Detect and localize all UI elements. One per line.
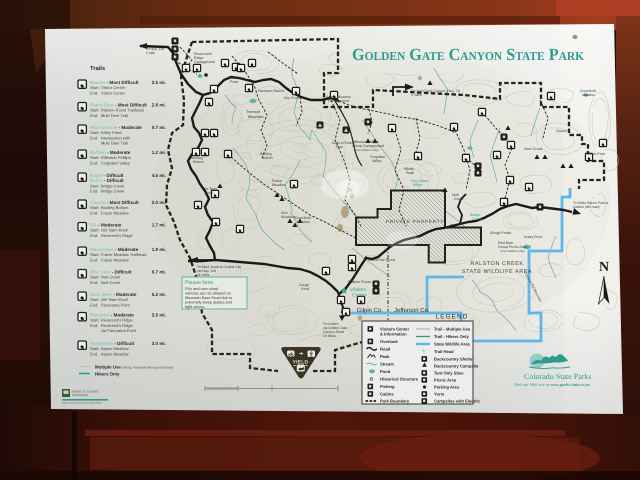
svg-text:Meadow: Meadow xyxy=(582,93,595,97)
svg-text:Ralston Point: Ralston Point xyxy=(585,152,605,156)
svg-text:Historical Structure: Historical Structure xyxy=(380,377,419,382)
svg-text:1.7 mi.: 1.7 mi. xyxy=(152,223,166,228)
svg-text:Gilpin Co.: Gilpin Co. xyxy=(357,307,384,314)
svg-text:0.7 mi.: 0.7 mi. xyxy=(152,125,166,130)
svg-text:6.7 mi.: 6.7 mi. xyxy=(152,270,166,275)
svg-text:3.0 mi.: 3.0 mi. xyxy=(152,341,166,346)
svg-text:via Panorama Point: via Panorama Point xyxy=(101,328,137,333)
svg-text:Yurts: Yurts xyxy=(434,392,445,397)
svg-text:Bridge Creek: Bridge Creek xyxy=(101,189,124,194)
svg-text:Trail - Multiple Use: Trail - Multiple Use xyxy=(434,327,471,332)
svg-text:Nott Creek: Nott Creek xyxy=(101,280,120,285)
svg-text:N: N xyxy=(599,260,609,275)
svg-text:Hole: Hole xyxy=(336,145,343,149)
svg-text:Slough Ponds: Slough Ponds xyxy=(490,231,511,235)
svg-text:Campground: Campground xyxy=(194,60,215,64)
svg-text:Hikers Only: Hikers Only xyxy=(95,372,120,377)
svg-text:Parking Area: Parking Area xyxy=(434,385,460,390)
svg-text:Golden (dirt road): Golden (dirt road) xyxy=(573,205,600,209)
svg-text:Forgotten Valley: Forgotten Valley xyxy=(101,160,130,165)
svg-text:Multiple Use: Multiple Use xyxy=(95,365,121,370)
svg-text:Mountain Base Road due to: Mountain Base Road due to xyxy=(185,296,232,300)
svg-text:End:: End: xyxy=(90,113,98,118)
svg-text:Tremont: Tremont xyxy=(246,110,261,114)
svg-text:Meadows: Meadows xyxy=(281,215,296,219)
svg-text:Reverend's Ridge: Reverend's Ridge xyxy=(101,233,133,238)
svg-text:Backcountry Campsite: Backcountry Campsite xyxy=(434,364,479,369)
svg-text:Tent Only Sites: Tent Only Sites xyxy=(434,371,464,376)
svg-text:End:: End: xyxy=(90,90,98,95)
svg-text:End:: End: xyxy=(90,257,98,262)
svg-text:Aspen Meadow: Aspen Meadow xyxy=(101,351,129,356)
svg-text:STATE WILDLIFE AREA: STATE WILDLIFE AREA xyxy=(462,269,532,275)
svg-text:Creek: Creek xyxy=(454,197,464,201)
svg-text:RALSTON CREEK: RALSTON CREEK xyxy=(470,261,523,267)
svg-text:Pond: Pond xyxy=(380,369,391,374)
svg-text:Jefferson Co.: Jefferson Co. xyxy=(394,307,430,314)
svg-text:1.2 mi.: 1.2 mi. xyxy=(152,150,166,155)
svg-text:Bottom: Bottom xyxy=(193,160,204,164)
svg-text:Pond: Pond xyxy=(301,287,309,291)
svg-text:Colorado State Parks: Colorado State Parks xyxy=(524,372,592,381)
svg-text:(reservations only): (reservations only) xyxy=(354,148,379,152)
svg-text:2.5 mi.: 2.5 mi. xyxy=(152,313,166,318)
svg-text:Center: Center xyxy=(352,293,367,299)
svg-text:Visit our Web site at www.park: Visit our Web site at www.parks.state.co… xyxy=(514,382,590,387)
svg-text:Mule Deer Trail: Mule Deer Trail xyxy=(101,141,128,146)
svg-text:End:: End: xyxy=(90,302,98,307)
svg-text:Bottom: Bottom xyxy=(262,156,273,160)
svg-text:extremely steep grades and: extremely steep grades and xyxy=(185,301,232,305)
svg-text:(hiking, mountain biking and h: (hiking, mountain biking and horses) xyxy=(122,366,173,370)
svg-text:tight curves.: tight curves. xyxy=(185,305,205,309)
svg-text:End:: End: xyxy=(90,135,98,140)
svg-text:Meadow: Meadow xyxy=(297,220,310,224)
svg-text:(reservations only): (reservations only) xyxy=(500,249,525,253)
svg-text:Point: Point xyxy=(230,80,238,84)
svg-text:1 mile: 1 mile xyxy=(146,51,155,55)
svg-text:Knoll: Knoll xyxy=(205,191,213,195)
svg-text:Road: Road xyxy=(380,347,391,352)
svg-text:RVs and over-sized: RVs and over-sized xyxy=(185,287,218,291)
svg-text:Mountain: Mountain xyxy=(248,115,264,119)
svg-text:Visitor Center: Visitor Center xyxy=(101,90,126,95)
svg-text:Stream: Stream xyxy=(380,362,394,367)
svg-text:Picnic Area: Picnic Area xyxy=(434,378,457,383)
svg-text:Harmsen Ranch: Harmsen Ranch xyxy=(258,89,284,93)
svg-text:Deer Creek: Deer Creek xyxy=(524,147,543,151)
svg-text:Park Boundary: Park Boundary xyxy=(380,399,410,404)
svg-text:11 miles: 11 miles xyxy=(197,273,210,277)
svg-text:LEGEND: LEGEND xyxy=(436,314,469,321)
svg-text:Please Note: Please Note xyxy=(185,280,213,286)
svg-text:1.8 mi.: 1.8 mi. xyxy=(152,247,166,252)
svg-text:Meadow: Meadow xyxy=(272,183,286,187)
svg-text:End:: End: xyxy=(90,160,98,165)
svg-text:5 miles: 5 miles xyxy=(411,93,422,97)
svg-text:COLORADO: COLORADO xyxy=(72,393,89,397)
svg-text:End:: End: xyxy=(90,233,98,238)
svg-text:Campsites with Electric: Campsites with Electric xyxy=(434,399,481,404)
svg-text:5.2 mi.: 5.2 mi. xyxy=(152,292,166,297)
svg-text:13 miles: 13 miles xyxy=(323,334,336,338)
svg-text:2.8 mi.: 2.8 mi. xyxy=(152,103,166,108)
svg-text:4.5 mi.: 4.5 mi. xyxy=(152,173,166,178)
svg-text:Creek: Creek xyxy=(472,217,482,221)
svg-text:Golden Gate Canyon State Park: Golden Gate Canyon State Park xyxy=(352,45,585,64)
svg-text:Trail - Hikers Only: Trail - Hikers Only xyxy=(434,334,470,339)
svg-text:Quarry: Quarry xyxy=(556,129,567,133)
svg-text:Campground: Campground xyxy=(328,99,349,103)
svg-text:End:: End: xyxy=(90,280,98,285)
svg-text:Ridge: Ridge xyxy=(413,183,422,187)
svg-text:PRIVATE PROPERTY: PRIVATE PROPERTY xyxy=(386,219,444,224)
svg-text:Peak: Peak xyxy=(380,354,390,359)
svg-text:Peak: Peak xyxy=(406,171,414,175)
svg-text:Panorama Point: Panorama Point xyxy=(101,302,131,307)
svg-text:End:: End: xyxy=(90,323,98,328)
svg-text:Overlook: Overlook xyxy=(380,339,398,344)
svg-text:Trails: Trails xyxy=(90,65,105,72)
svg-text:Fishing: Fishing xyxy=(380,384,395,389)
svg-text:lottery proceeds help fund thi: lottery proceeds help fund this project xyxy=(62,401,102,404)
svg-text:Round the Roost: Round the Roost xyxy=(368,258,395,262)
svg-text:Aviary Pond: Aviary Pond xyxy=(524,235,542,239)
svg-text:End:: End: xyxy=(90,189,98,194)
svg-text:Valley: Valley xyxy=(372,159,382,163)
svg-text:End:: End: xyxy=(90,210,98,215)
svg-text:End:: End: xyxy=(90,351,98,356)
svg-text:State Wildlife Area: State Wildlife Area xyxy=(434,342,470,347)
svg-text:Frazer Meadow: Frazer Meadow xyxy=(101,210,129,215)
svg-text:Ralston Roost: Ralston Roost xyxy=(348,280,371,284)
svg-text:Backcountry Shelter: Backcountry Shelter xyxy=(434,357,474,362)
svg-text:& Information: & Information xyxy=(380,332,407,337)
svg-text:2.5 mi.: 2.5 mi. xyxy=(152,80,166,85)
svg-text:Trail Head: Trail Head xyxy=(434,349,454,354)
svg-text:Mule Deer Trail: Mule Deer Trail xyxy=(101,113,128,118)
svg-text:Sap Road: Sap Road xyxy=(284,96,299,100)
svg-text:T: T xyxy=(423,349,426,354)
svg-text:Frazer Meadow: Frazer Meadow xyxy=(101,257,129,262)
svg-text:vehicles are not allowed on: vehicles are not allowed on xyxy=(185,292,231,296)
svg-text:Cabins: Cabins xyxy=(380,392,394,397)
svg-text:2.0 mi.: 2.0 mi. xyxy=(152,200,166,205)
